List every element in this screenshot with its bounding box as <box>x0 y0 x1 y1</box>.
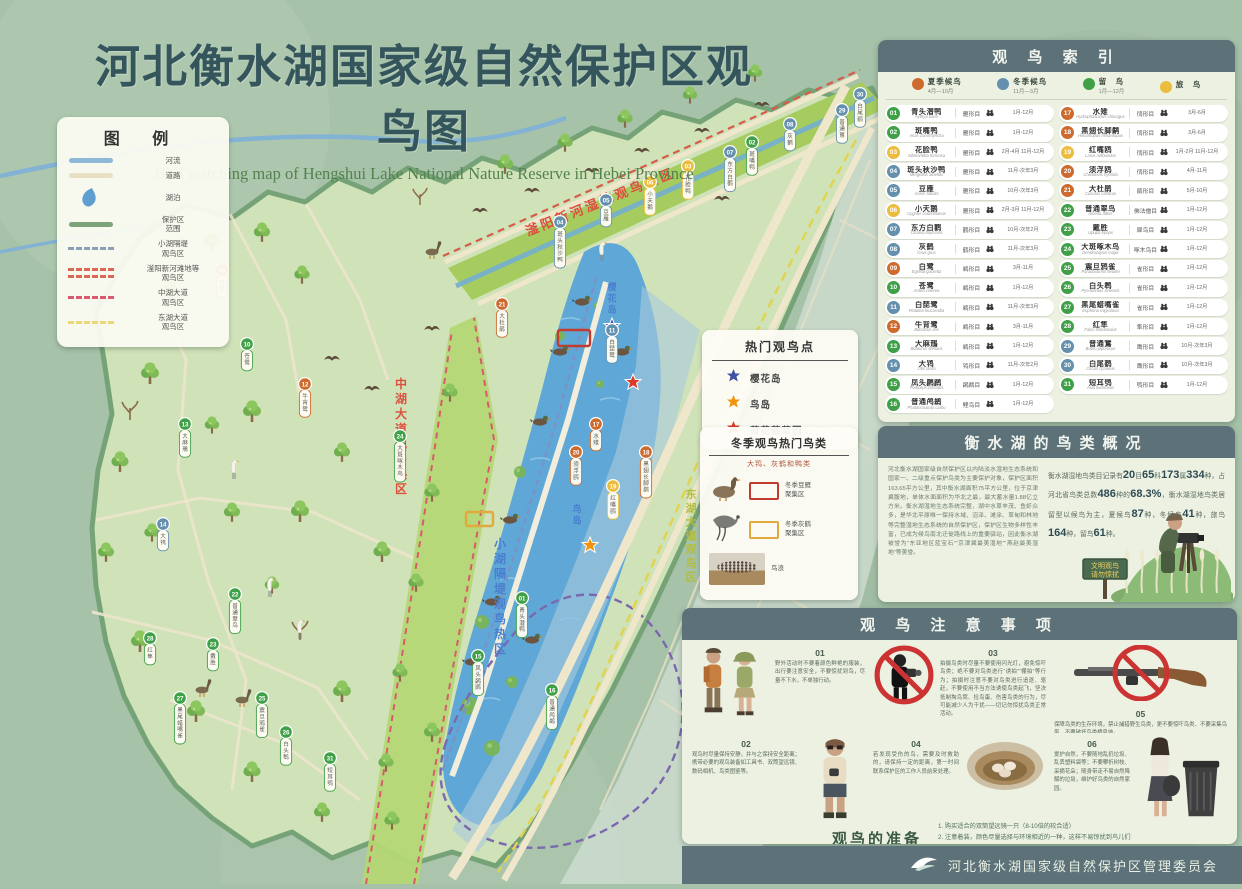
crane-icon <box>709 512 743 547</box>
bird-months: 1月-12月 <box>1169 246 1225 252</box>
bird-name: 须浮鸥Chlidonias hybrida <box>1074 166 1127 178</box>
bird-order: 鸻形目 <box>1132 109 1159 118</box>
bird-number-badge: 06 <box>887 204 900 217</box>
note-number: 05 <box>1054 709 1227 719</box>
svg-text:08: 08 <box>787 121 794 128</box>
goose-icon <box>709 475 743 506</box>
map-marker: 白尾鹞 30 <box>854 88 867 128</box>
bird-name: 大斑啄木鸟Dendrocopos major <box>1074 243 1127 255</box>
bird-order: 雁形目 <box>958 128 985 137</box>
svg-text:凤头䴙䴘: 凤头䴙䴘 <box>475 665 481 691</box>
bird-order: 啄木鸟目 <box>1132 245 1159 254</box>
note-number: 06 <box>1054 739 1130 749</box>
bird-number-badge: 11 <box>887 301 900 314</box>
binoculars-icon <box>1159 376 1169 394</box>
legend-item: 保护区 范围 <box>67 215 219 235</box>
season-item: 冬季候鸟11月—3月 <box>997 77 1047 96</box>
legend-items: 河流 道路 湖泊 保护区 范围 小湖隔堤 观鸟区 滏阳新河滩地等 观鸟区 中湖大… <box>67 156 219 332</box>
binoculars-icon <box>985 221 995 239</box>
bird-order: 雁形目 <box>958 148 985 157</box>
bird-months: 1月-12月 <box>995 343 1051 349</box>
svg-text:短耳鸮: 短耳鸮 <box>327 766 333 787</box>
hotspot-item: 鸟岛 <box>726 394 848 414</box>
bird-index-header: 观 鸟 索 引 <box>878 40 1235 72</box>
season-item: 夏季候鸟4月—10月 <box>912 77 962 96</box>
bird-name: 牛背鹭Bubulcus ibis <box>900 321 953 333</box>
bird-order: 雁形目 <box>958 167 985 176</box>
svg-text:大杜鹃: 大杜鹃 <box>499 312 505 333</box>
bird-row: 09 白鹭Egretta garzetta 鹈形目 3月-11月 <box>885 260 1054 278</box>
svg-text:23: 23 <box>210 641 217 648</box>
bird-row: 22 普通翠鸟Alcedo atthis 佛法僧目 1月-12月 <box>1059 202 1228 220</box>
svg-text:14: 14 <box>160 521 167 528</box>
notes-grid: 01野外活动时不要着颜色鲜艳的服装，出行要注意安全，不要惊扰到鸟，尽量不下水，不… <box>682 640 1237 820</box>
bird-order: 鸨形目 <box>958 361 985 370</box>
svg-text:小天鹅: 小天鹅 <box>647 190 653 211</box>
bird-row: 07 东方白鹳Ciconia boyciana 鹳形目 10月-次年2月 <box>885 221 1054 239</box>
svg-text:01: 01 <box>519 595 526 602</box>
binoculars-icon <box>985 182 995 200</box>
svg-text:10: 10 <box>244 341 251 348</box>
notes-header: 观 鸟 注 意 事 项 <box>682 608 1237 640</box>
bird-name: 青头潜鸭Aythya baeri <box>900 108 953 120</box>
bird-months: 10月-次年3月 <box>995 188 1051 194</box>
svg-text:31: 31 <box>327 755 334 762</box>
winter-item: 冬季灰鹤 聚集区 <box>709 512 849 547</box>
bird-order: 雁形目 <box>958 206 985 215</box>
overview-header: 衡水湖的鸟类概况 <box>878 426 1235 458</box>
bird-months: 1月-2月 11月-12月 <box>1169 149 1225 155</box>
womanbin-illustration <box>1135 736 1227 820</box>
svg-text:须浮鸥: 须浮鸥 <box>573 460 579 481</box>
bird-number-badge: 28 <box>1061 320 1074 333</box>
map-marker: 苍鹭 10 <box>241 338 254 371</box>
binoculars-icon <box>1159 221 1169 239</box>
zone-swatch <box>749 521 779 539</box>
dash-blue-swatch-icon <box>67 247 115 250</box>
svg-text:11: 11 <box>609 327 616 334</box>
map-marker: 短耳鸮 31 <box>324 752 337 792</box>
bird-number-badge: 19 <box>1061 146 1074 159</box>
bird-name: 豆雁Anser fabalis <box>900 185 953 197</box>
bird-name: 水雉Hydrophasianus chirurgus <box>1074 108 1127 120</box>
bird-number-badge: 10 <box>887 281 900 294</box>
nocam-illustration <box>873 645 935 712</box>
bird-order: 隼形目 <box>1132 322 1159 331</box>
overview-body: 河北衡水湖国家级自然保护区以内陆淡水湿地生态系统和国家一、二级重点保护鸟类为主要… <box>878 458 1235 602</box>
bird-row: 27 黑尾蜡嘴雀Eophona migratoria 雀形目 1月-12月 <box>1059 299 1228 317</box>
bird-name: 灰鹤Grus grus <box>900 243 953 255</box>
svg-text:戴胜: 戴胜 <box>210 652 216 666</box>
map-marker: 凤头䴙䴘 15 <box>472 650 485 696</box>
svg-text:28: 28 <box>147 635 154 642</box>
bird-order: 雀形目 <box>1132 303 1159 312</box>
bird-name: 红嘴鸥Larus ridibundus <box>1074 146 1127 158</box>
note-item: 03拍摄鸟类时尽量不要使用闪光灯，避免惊吓鸟类；绝不要对鸟类进行“诱拍”“棚拍”… <box>873 645 1046 733</box>
bird-order: 鸻形目 <box>1132 148 1159 157</box>
bird-order: 鹃形目 <box>1132 186 1159 195</box>
bird-months: 3月-6月 <box>1169 110 1225 116</box>
binoculars-icon <box>1159 201 1169 219</box>
bird-number-badge: 25 <box>1061 262 1074 275</box>
svg-text:12: 12 <box>302 381 309 388</box>
svg-text:黑翅长脚鹬: 黑翅长脚鹬 <box>643 461 649 494</box>
bird-months: 2月-3月 11月-12月 <box>995 207 1051 213</box>
season-dot-icon <box>912 78 924 90</box>
binoculars-icon <box>985 240 995 258</box>
legend-item: 东湖大道 观鸟区 <box>67 313 219 333</box>
bird-months: 1月-12月 <box>1169 382 1225 388</box>
bird-order: 鹈形目 <box>958 322 985 331</box>
bird-row: 03 花脸鸭Sibirionetta formosa 雁形目 2月-4月 11月… <box>885 143 1054 161</box>
bird-number-badge: 17 <box>1061 107 1074 120</box>
legend-item: 中湖大道 观鸟区 <box>67 288 219 308</box>
note-text: 爱护自然，不要随地乱扔垃圾、乱丢塑料袋等；不要攀折树枝、采摘花朵；随身带走不易自… <box>1054 751 1130 793</box>
bird-months: 10月-次年3月 <box>1169 362 1225 368</box>
svg-text:18: 18 <box>643 449 650 456</box>
map-marker: 普通鸬鹚 16 <box>546 684 559 730</box>
map-marker: 大斑啄木鸟 24 <box>394 430 407 482</box>
prep-title: 观鸟的准备 <box>832 828 922 844</box>
season-legend: 夏季候鸟4月—10月 冬季候鸟11月—3月 留 鸟1月—12月 旅 鸟 <box>886 72 1227 100</box>
bird-months: 1月-12月 <box>1169 324 1225 330</box>
bird-order: 雀形目 <box>1132 264 1159 273</box>
binoculars-icon <box>1159 104 1169 122</box>
bird-order: 犀鸟目 <box>1132 225 1159 234</box>
bird-number-badge: 16 <box>887 398 900 411</box>
bird-index-col-2: 17 水雉Hydrophasianus chirurgus 鸻形目 3月-6月 … <box>1059 105 1228 413</box>
svg-text:24: 24 <box>397 433 404 440</box>
svg-text:青头潜鸭: 青头潜鸭 <box>519 606 525 633</box>
bird-row: 05 豆雁Anser fabalis 雁形目 10月-次年3月 <box>885 182 1054 200</box>
svg-text:水雉: 水雉 <box>593 432 599 446</box>
bird-months: 1月-12月 <box>995 130 1051 136</box>
bird-row: 04 斑头秋沙鸭Mergellus albellus 雁形目 11月-次年3月 <box>885 163 1054 181</box>
bird-number-badge: 15 <box>887 378 900 391</box>
map-marker: 黑尾蜡嘴雀 27 <box>174 692 187 744</box>
bird-number-badge: 23 <box>1061 223 1074 236</box>
bird-name: 凤头䴙䴘Podiceps cristatus <box>900 379 953 391</box>
svg-text:牛背鹭: 牛背鹭 <box>302 392 308 413</box>
svg-text:05: 05 <box>603 197 610 204</box>
bird-row: 23 戴胜Upupa epops 犀鸟目 1月-12月 <box>1059 221 1228 239</box>
bird-number-badge: 05 <box>887 184 900 197</box>
bird-name: 大杜鹃Cuculus canorus <box>1074 185 1127 197</box>
svg-text:斑头秋沙鸭: 斑头秋沙鸭 <box>557 231 563 264</box>
bird-index-panel: 观 鸟 索 引 夏季候鸟4月—10月 冬季候鸟11月—3月 留 鸟1月—12月 … <box>878 40 1235 422</box>
binoculars-icon <box>985 104 995 122</box>
binoculars-icon <box>1159 124 1169 142</box>
bird-number-badge: 13 <box>887 340 900 353</box>
reserve-logo-icon <box>909 854 939 877</box>
bird-months: 3月-6月 <box>1169 130 1225 136</box>
bird-months: 1月-12月 <box>1169 207 1225 213</box>
bird-order: 鸻形目 <box>1132 128 1159 137</box>
note-item: 01野外活动时不要着颜色鲜艳的服装，出行要注意安全，不要惊扰到鸟，尽量不下水，不… <box>692 645 865 733</box>
bird-number-badge: 08 <box>887 243 900 256</box>
bird-row: 17 水雉Hydrophasianus chirurgus 鸻形目 3月-6月 <box>1059 105 1228 123</box>
note-number: 02 <box>692 739 800 749</box>
bird-months: 3月-11月 <box>995 265 1051 271</box>
binoculars-icon <box>1159 356 1169 374</box>
winter-item: 冬季豆雁 聚集区 <box>709 475 849 506</box>
bird-row: 06 小天鹅Cygnus columbianus 雁形目 2月-3月 11月-1… <box>885 202 1054 220</box>
svg-text:白尾鹞: 白尾鹞 <box>857 102 863 123</box>
bird-name: 花脸鸭Sibirionetta formosa <box>900 146 953 158</box>
bird-row: 18 黑翅长脚鹬Himantopus himantopus 鸻形目 3月-6月 <box>1059 124 1228 142</box>
prep-row: 观鸟的准备 1. 购买适合的双筒望远镜一只（8-10倍的较合适）2. 注意着装，… <box>682 820 1237 844</box>
binoculars-icon <box>1159 260 1169 278</box>
note-item: 05保障鸟类的生存环境，禁止捕猎野生鸟类，更不要惊吓鸟类、不要采集鸟蛋、不要破坏… <box>1054 645 1227 733</box>
zone-swatch <box>749 482 779 500</box>
svg-text:红隼: 红隼 <box>147 646 153 660</box>
star-icon <box>726 368 741 388</box>
footer-org-name: 河北衡水湖国家级自然保护区管理委员会 <box>948 856 1218 875</box>
binoculars-icon <box>985 124 995 142</box>
svg-text:大斑啄木鸟: 大斑啄木鸟 <box>397 444 403 478</box>
svg-text:25: 25 <box>259 695 266 702</box>
star-icon <box>726 394 741 414</box>
border-swatch-icon <box>67 222 115 227</box>
bird-number-badge: 31 <box>1061 378 1074 391</box>
bird-months: 1月-12月 <box>1169 285 1225 291</box>
lake-swatch-icon <box>67 186 115 210</box>
legend-item: 小湖隔堤 观鸟区 <box>67 239 219 259</box>
bird-row: 01 青头潜鸭Aythya baeri 雁形目 1月-12月 <box>885 105 1054 123</box>
binoculars-icon <box>985 318 995 336</box>
bird-months: 1月-12月 <box>995 401 1051 407</box>
bird-months: 11月-次年3月 <box>995 168 1051 174</box>
footer-bar: 河北衡水湖国家级自然保护区管理委员会 <box>682 846 1242 884</box>
bird-number-badge: 01 <box>887 107 900 120</box>
bird-name: 短耳鸮Asio flammeus <box>1074 379 1127 391</box>
binoculars-icon <box>1159 279 1169 297</box>
season-dot-icon <box>1083 78 1095 90</box>
svg-text:豆雁: 豆雁 <box>603 209 609 222</box>
dash-pink-swatch-icon <box>67 296 115 299</box>
nest-illustration <box>964 736 1046 799</box>
note-item: 06爱护自然，不要随地乱扔垃圾、乱丢塑料袋等；不要攀折树枝、采摘花朵；随身带走不… <box>1054 736 1227 820</box>
note-text: 拍摄鸟类时尽量不要使用闪光灯，避免惊吓鸟类；绝不要对鸟类进行“诱拍”“棚拍”等行… <box>940 660 1046 719</box>
map-marker: 水雉 17 <box>590 418 603 451</box>
gun-illustration <box>1066 645 1216 706</box>
bird-name: 白鹭Egretta garzetta <box>900 263 953 275</box>
bird-row: 15 凤头䴙䴘Podiceps cristatus 䴙䴘目 1月-12月 <box>885 376 1054 394</box>
binoculars-icon <box>985 201 995 219</box>
prep-line: 2. 注意着装，颜色尽量选择与环境相近的一种，这样不易惊扰到鸟儿们 <box>938 833 1131 844</box>
map-area-label: 樱花岛 <box>606 281 616 315</box>
winter-box-title: 冬季观鸟热门鸟类 <box>709 435 849 456</box>
bird-months: 1月-12月 <box>1169 227 1225 233</box>
bird-row: 08 灰鹤Grus grus 鹤形目 11月-次年3月 <box>885 240 1054 258</box>
svg-text:19: 19 <box>610 483 617 490</box>
note-text: 保障鸟类的生存环境，禁止捕猎野生鸟类，更不要惊吓鸟类、不要采集鸟蛋、不要破坏鸟类… <box>1054 721 1227 733</box>
bird-months: 1月-12月 <box>995 110 1051 116</box>
binoculars-icon <box>985 395 995 413</box>
svg-text:白琵鹭: 白琵鹭 <box>609 338 615 359</box>
bird-months: 5月-10月 <box>1169 188 1225 194</box>
bird-order: 鹈形目 <box>958 303 985 312</box>
svg-text:13: 13 <box>182 421 189 428</box>
svg-text:30: 30 <box>857 91 864 98</box>
bird-number-badge: 14 <box>887 359 900 372</box>
map-marker: 红嘴鸥 19 <box>607 480 620 520</box>
map-marker: 白琵鹭 11 <box>606 324 619 364</box>
bird-number-badge: 26 <box>1061 281 1074 294</box>
bird-name: 黑翅长脚鹬Himantopus himantopus <box>1074 127 1127 139</box>
svg-text:20: 20 <box>573 449 580 456</box>
svg-text:29: 29 <box>839 107 846 114</box>
bird-row: 29 普通鵟Buteo japonicus 鹰形目 10月-次年3月 <box>1059 337 1228 355</box>
winter-box-subtitle: 大鸨、灰鹤和鸭类 <box>709 459 849 469</box>
bird-name: 白琵鹭Platalea leucorodia <box>900 301 953 313</box>
bird-months: 1月-12月 <box>995 285 1051 291</box>
bird-order: 鹳形目 <box>958 225 985 234</box>
dash-yellow-swatch-icon <box>67 321 115 324</box>
bird-order: 鸮形目 <box>1132 380 1159 389</box>
overview-panel: 衡水湖的鸟类概况 河北衡水湖国家级自然保护区以内陆淡水湿地生态系统和国家一、二级… <box>878 426 1235 602</box>
map-marker: 戴胜 23 <box>207 638 220 671</box>
winter-birds-box: 冬季观鸟热门鸟类 大鸨、灰鹤和鸭类 冬季豆雁 聚集区 冬季灰鹤 聚集区 鸟浪 <box>700 427 858 600</box>
svg-text:红嘴鸥: 红嘴鸥 <box>610 494 616 515</box>
map-marker: 灰鹤 08 <box>784 118 797 151</box>
svg-text:灰鹤: 灰鹤 <box>787 132 793 146</box>
binoculars-icon <box>1159 337 1169 355</box>
binoculars-icon <box>985 279 995 297</box>
bird-row: 20 须浮鸥Chlidonias hybrida 鸻形目 4月-11月 <box>1059 163 1228 181</box>
bird-row: 21 大杜鹃Cuculus canorus 鹃形目 5月-10月 <box>1059 182 1228 200</box>
bird-name: 黑尾蜡嘴雀Eophona migratoria <box>1074 301 1127 313</box>
note-number: 03 <box>940 648 1046 658</box>
binoculars-icon <box>985 298 995 316</box>
bird-number-badge: 07 <box>887 223 900 236</box>
bird-months: 3月-11月 <box>995 324 1051 330</box>
bird-months: 11月-次年2月 <box>995 362 1051 368</box>
bird-number-badge: 03 <box>887 146 900 159</box>
binoculars-icon <box>985 376 995 394</box>
season-dot-icon <box>997 78 1009 90</box>
bird-number-badge: 27 <box>1061 301 1074 314</box>
map-marker: 大麻鳽 13 <box>179 418 192 458</box>
bird-name: 大麻鳽Botaurus stellaris <box>900 340 953 352</box>
bird-row: 11 白琵鹭Platalea leucorodia 鹈形目 11月-次年3月 <box>885 299 1054 317</box>
binoculars-icon <box>985 356 995 374</box>
map-marker: 青头潜鸭 01 <box>516 592 529 638</box>
hotspot-title: 热门观鸟点 <box>712 338 848 361</box>
binoculars-icon <box>1159 240 1169 258</box>
svg-text:22: 22 <box>232 591 239 598</box>
legend-item: 道路 <box>67 171 219 181</box>
binoculars-icon <box>985 260 995 278</box>
legend-item: 湖泊 <box>67 186 219 210</box>
bird-name: 红隼Falco tinnunculus <box>1074 321 1127 333</box>
note-text: 观鸟时尽量保持安静，并与之保持安全距离；携带必要的观鸟装备如工具书、双筒望远镜、… <box>692 751 800 776</box>
bird-months: 1月-12月 <box>1169 265 1225 271</box>
svg-text:16: 16 <box>549 687 556 694</box>
svg-text:黑尾蜡嘴雀: 黑尾蜡嘴雀 <box>177 707 183 740</box>
bird-name: 斑头秋沙鸭Mergellus albellus <box>900 166 953 178</box>
map-marker: 黑翅长脚鹬 18 <box>640 446 653 498</box>
bird-name: 震旦鸦雀Paradoxornis heudei <box>1074 263 1127 275</box>
bird-months: 1月-12月 <box>1169 304 1225 310</box>
map-marker: 豆雁 05 <box>600 194 613 227</box>
binoculars-icon <box>985 163 995 181</box>
svg-text:26: 26 <box>283 729 290 736</box>
bird-name: 斑嘴鸭Anas zonorhyncha <box>900 127 953 139</box>
note-number: 04 <box>873 739 959 749</box>
season-item: 旅 鸟 <box>1160 80 1202 93</box>
map-marker: 白头鹎 26 <box>280 726 293 766</box>
prep-lines: 1. 购买适合的双筒望远镜一只（8-10倍的较合适）2. 注意着装，颜色尽量选择… <box>938 822 1131 844</box>
bird-order: 鹤形目 <box>958 245 985 254</box>
season-item: 留 鸟1月—12月 <box>1083 77 1125 96</box>
map-marker: 红隼 28 <box>144 632 157 665</box>
bird-number-badge: 30 <box>1061 359 1074 372</box>
photo-icon <box>709 553 765 585</box>
bird-wave-photo <box>709 553 765 585</box>
note-item: 04若发现受伤的鸟，需要及时救助的，请保持一定的距离，第一时间联系保护区的工作人… <box>873 736 1046 820</box>
bird-row: 28 红隼Falco tinnunculus 隼形目 1月-12月 <box>1059 318 1228 336</box>
map-marker: 大杜鹃 21 <box>496 298 509 338</box>
bird-index-col-1: 01 青头潜鸭Aythya baeri 雁形目 1月-12月 02 斑嘴鸭Ana… <box>885 105 1054 413</box>
binoculars-icon <box>1159 318 1169 336</box>
svg-text:27: 27 <box>177 695 184 702</box>
bird-row: 26 白头鹎Pycnonotus sinensis 雀形目 1月-12月 <box>1059 279 1228 297</box>
bird-order: 鹈形目 <box>958 342 985 351</box>
map-marker: 普通翠鸟 22 <box>229 588 242 634</box>
svg-text:普通翠鸟: 普通翠鸟 <box>232 602 238 629</box>
binoculars-icon <box>1159 182 1169 200</box>
bird-months: 2月-4月 11月-12月 <box>995 149 1051 155</box>
bird-name: 普通鵟Buteo japonicus <box>1074 340 1127 352</box>
bird-name: 白头鹎Pycnonotus sinensis <box>1074 282 1127 294</box>
svg-text:震旦鸦雀: 震旦鸦雀 <box>259 707 265 733</box>
birder-illustration <box>805 736 865 820</box>
svg-text:苍鹭: 苍鹭 <box>244 352 250 366</box>
bird-order: 鹰形目 <box>1132 342 1159 351</box>
bird-row: 25 震旦鸦雀Paradoxornis heudei 雀形目 1月-12月 <box>1059 260 1228 278</box>
binoculars-icon <box>1159 163 1169 181</box>
map-marker: 震旦鸦雀 25 <box>256 692 269 738</box>
road-swatch-icon <box>67 173 115 178</box>
bird-order: 鸻形目 <box>1132 167 1159 176</box>
bird-number-badge: 29 <box>1061 340 1074 353</box>
bird-name: 普通翠鸟Alcedo atthis <box>1074 205 1127 217</box>
bird-name: 戴胜Upupa epops <box>1074 224 1127 236</box>
map-legend: 图 例 河流 道路 湖泊 保护区 范围 小湖隔堤 观鸟区 滏阳新河滩地等 观鸟区… <box>57 117 229 347</box>
binoculars-icon <box>1159 143 1169 161</box>
svg-text:普通鸬鹚: 普通鸬鹚 <box>549 698 555 725</box>
legend-item: 河流 <box>67 156 219 166</box>
bird-row: 30 白尾鹞Circus cyaneus 鹰形目 10月-次年3月 <box>1059 357 1228 375</box>
bird-months: 4月-11月 <box>1169 168 1225 174</box>
bird-order: 鲣鸟目 <box>958 400 985 409</box>
bird-months: 1月-12月 <box>995 382 1051 388</box>
birding-notes-panel: 观 鸟 注 意 事 项 01野外活动时不要着颜色鲜艳的服装，出行要注意安全，不要… <box>682 608 1237 844</box>
bird-row: 13 大麻鳽Botaurus stellaris 鹈形目 1月-12月 <box>885 337 1054 355</box>
map-marker: 须浮鸥 20 <box>570 446 583 486</box>
bird-row: 19 红嘴鸥Larus ridibundus 鸻形目 1月-2月 11月-12月 <box>1059 143 1228 161</box>
bird-row: 16 普通鸬鹚Phalacrocorax carbo 鲣鸟目 1月-12月 <box>885 395 1054 413</box>
bird-row: 24 大斑啄木鸟Dendrocopos major 啄木鸟目 1月-12月 <box>1059 240 1228 258</box>
bird-order: 鹰形目 <box>1132 361 1159 370</box>
bird-number-badge: 04 <box>887 165 900 178</box>
svg-text:17: 17 <box>593 421 600 428</box>
binoculars-icon <box>985 337 995 355</box>
note-text: 野外活动时不要着颜色鲜艳的服装，出行要注意安全，不要惊扰到鸟，尽量不下水，不单独… <box>775 660 865 685</box>
svg-text:白头鹎: 白头鹎 <box>283 740 289 761</box>
bird-months: 10月-次年2月 <box>995 227 1051 233</box>
